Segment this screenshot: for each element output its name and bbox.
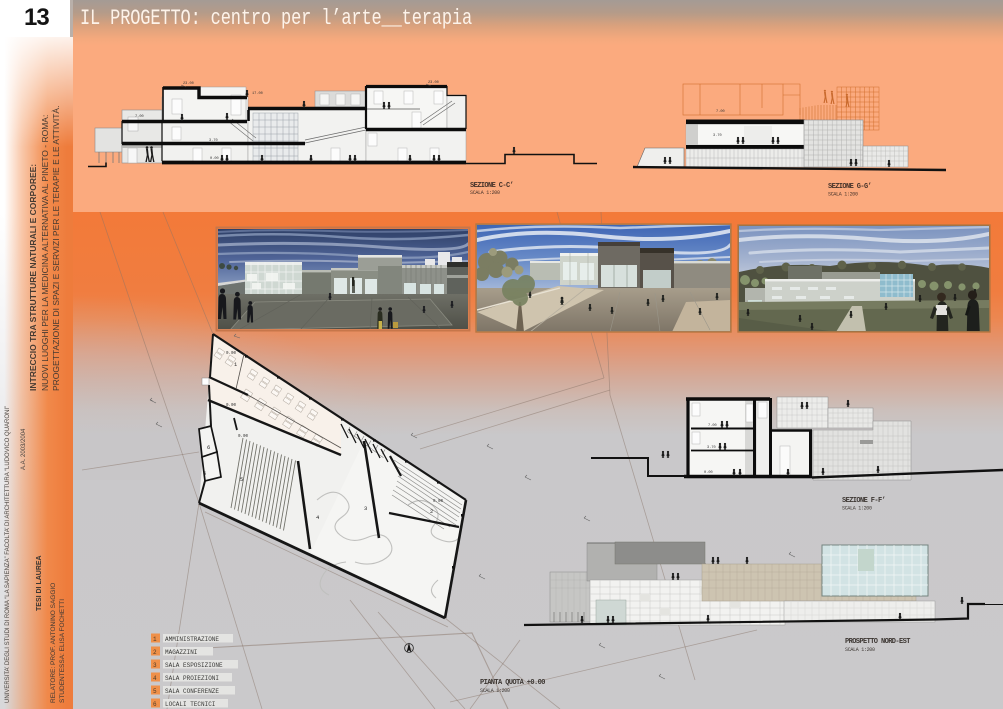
svg-text:6: 6 <box>153 701 157 708</box>
svg-text:0.00: 0.00 <box>238 435 249 439</box>
svg-text:6: 6 <box>207 445 210 451</box>
svg-text:3: 3 <box>364 506 367 512</box>
svg-text:0.00: 0.00 <box>210 157 219 161</box>
svg-text:7.00: 7.00 <box>716 110 725 114</box>
svg-text:3.70: 3.70 <box>707 446 716 450</box>
svg-text:LOCALI TECNICI: LOCALI TECNICI <box>165 701 215 708</box>
svg-text:PROSPETTO NORD-EST: PROSPETTO NORD-EST <box>845 638 910 646</box>
svg-text:17.00: 17.00 <box>252 92 263 96</box>
svg-text:SCALA 1:200: SCALA 1:200 <box>842 506 872 512</box>
svg-text:SALA ESPOSIZIONE: SALA ESPOSIZIONE <box>165 662 223 669</box>
svg-text:6: 6 <box>203 471 206 477</box>
svg-text:MAGAZZINI: MAGAZZINI <box>165 649 197 656</box>
svg-text:3.70: 3.70 <box>209 139 218 143</box>
svg-text:SCALA 1:200: SCALA 1:200 <box>828 192 858 198</box>
svg-text:SCALA 1:200: SCALA 1:200 <box>845 647 875 653</box>
svg-text:SALA CONFERENZE: SALA CONFERENZE <box>165 688 219 695</box>
svg-text:3: 3 <box>153 662 157 669</box>
svg-text:23.00: 23.00 <box>183 82 194 86</box>
svg-text:SALA PROIEZIONI: SALA PROIEZIONI <box>165 675 219 682</box>
svg-text:5: 5 <box>153 688 157 695</box>
svg-text:4: 4 <box>153 675 157 682</box>
svg-text:23.00: 23.00 <box>428 81 439 85</box>
svg-text:PIANTA QUOTA +0.00: PIANTA QUOTA +0.00 <box>480 679 545 687</box>
svg-text:0.00: 0.00 <box>433 500 444 504</box>
svg-text:2: 2 <box>153 649 157 656</box>
svg-text:3.70: 3.70 <box>713 134 722 138</box>
svg-text:SCALA 1:200: SCALA 1:200 <box>470 190 500 196</box>
svg-text:0.00: 0.00 <box>226 352 237 356</box>
svg-text:0.00: 0.00 <box>704 471 713 475</box>
svg-text:1: 1 <box>153 636 157 643</box>
svg-text:SEZIONE C-C’: SEZIONE C-C’ <box>470 182 513 190</box>
svg-text:7.00: 7.00 <box>708 424 717 428</box>
svg-text:SCALA 1:200: SCALA 1:200 <box>480 688 510 694</box>
svg-text:4: 4 <box>316 515 319 521</box>
svg-text:0.00: 0.00 <box>226 404 237 408</box>
svg-text:AMMINISTRAZIONE: AMMINISTRAZIONE <box>165 636 219 643</box>
svg-text:SEZIONE G-G’: SEZIONE G-G’ <box>828 183 871 191</box>
svg-text:5: 5 <box>240 477 243 483</box>
svg-text:SEZIONE F-F’: SEZIONE F-F’ <box>842 497 885 505</box>
svg-text:1: 1 <box>234 362 237 368</box>
svg-text:2: 2 <box>430 509 433 515</box>
svg-text:7.00: 7.00 <box>135 115 144 119</box>
